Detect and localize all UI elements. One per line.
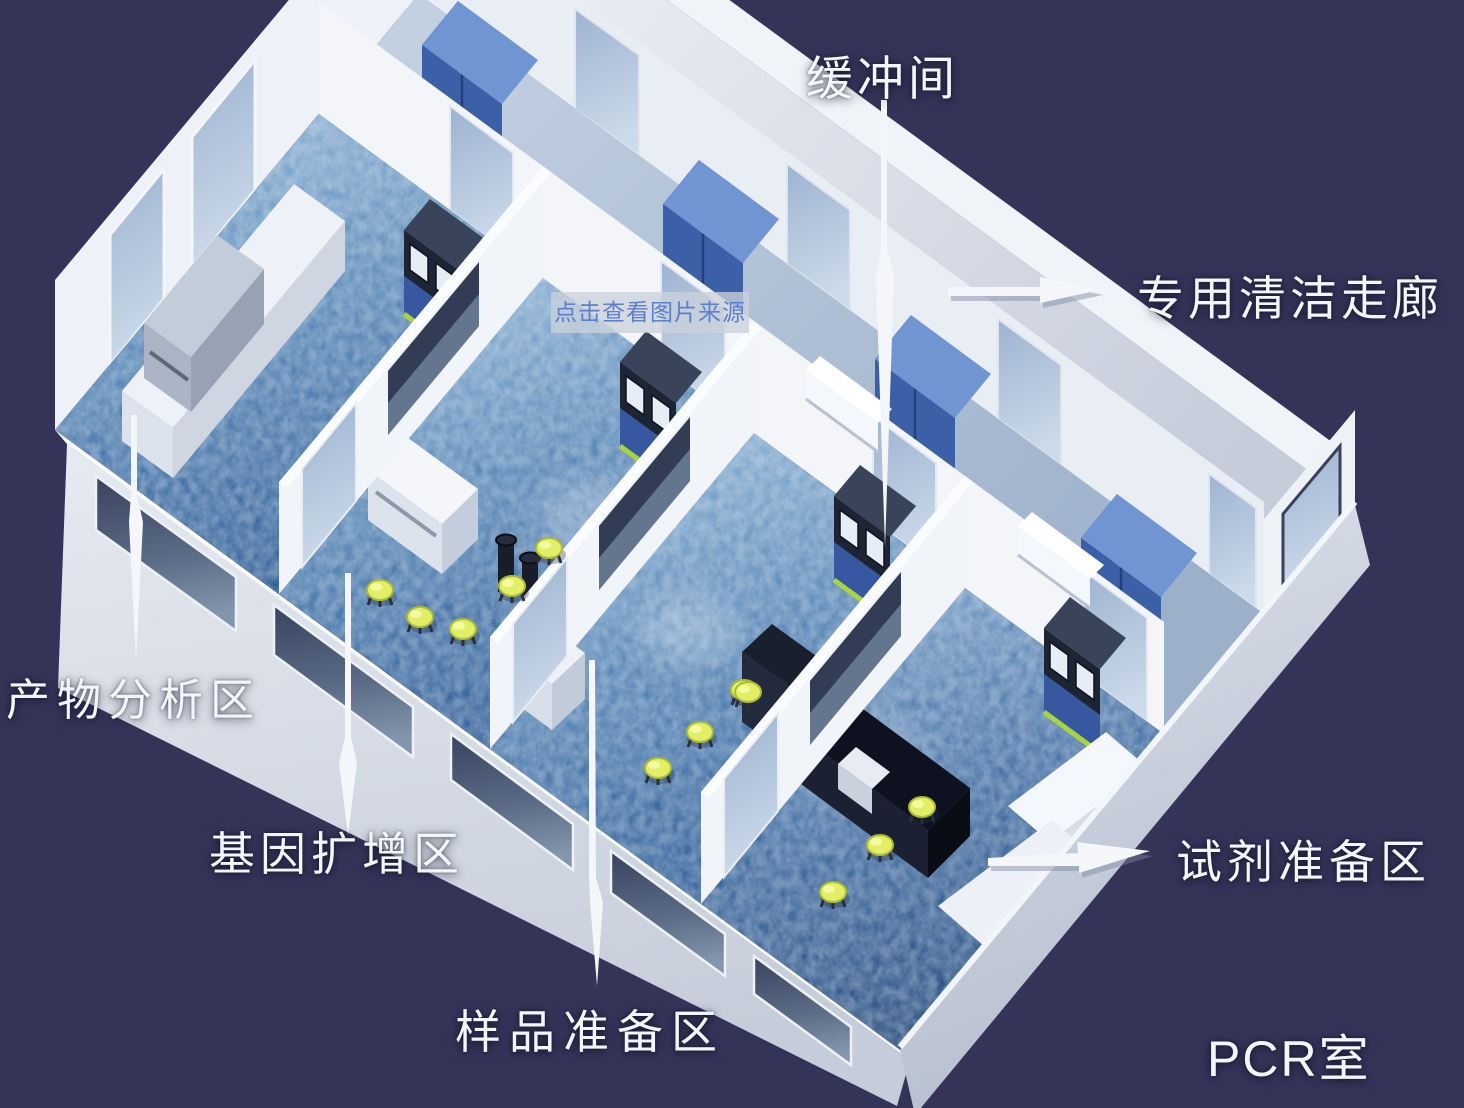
label-sample-preparation: 样品准备区 bbox=[455, 996, 725, 1062]
label-reagent-preparation: 试剂准备区 bbox=[1176, 826, 1431, 892]
pcr-lab-isometric-diagram: 缓冲间 专用清洁走廊 产物分析区 基因扩增区 样品准备区 试剂准备区 PCR室 … bbox=[0, 0, 1464, 1108]
lab-3d-scene bbox=[0, 0, 1464, 1108]
label-product-analysis: 产物分析区 bbox=[6, 664, 261, 728]
label-pcr-room: PCR室 bbox=[1207, 1019, 1371, 1091]
label-clean-corridor: 专用清洁走廊 bbox=[1137, 260, 1443, 329]
label-buffer-room: 缓冲间 bbox=[806, 40, 959, 109]
image-source-watermark-link[interactable]: 点击查看图片来源 bbox=[551, 292, 749, 333]
label-gene-amplification: 基因扩增区 bbox=[209, 818, 464, 884]
